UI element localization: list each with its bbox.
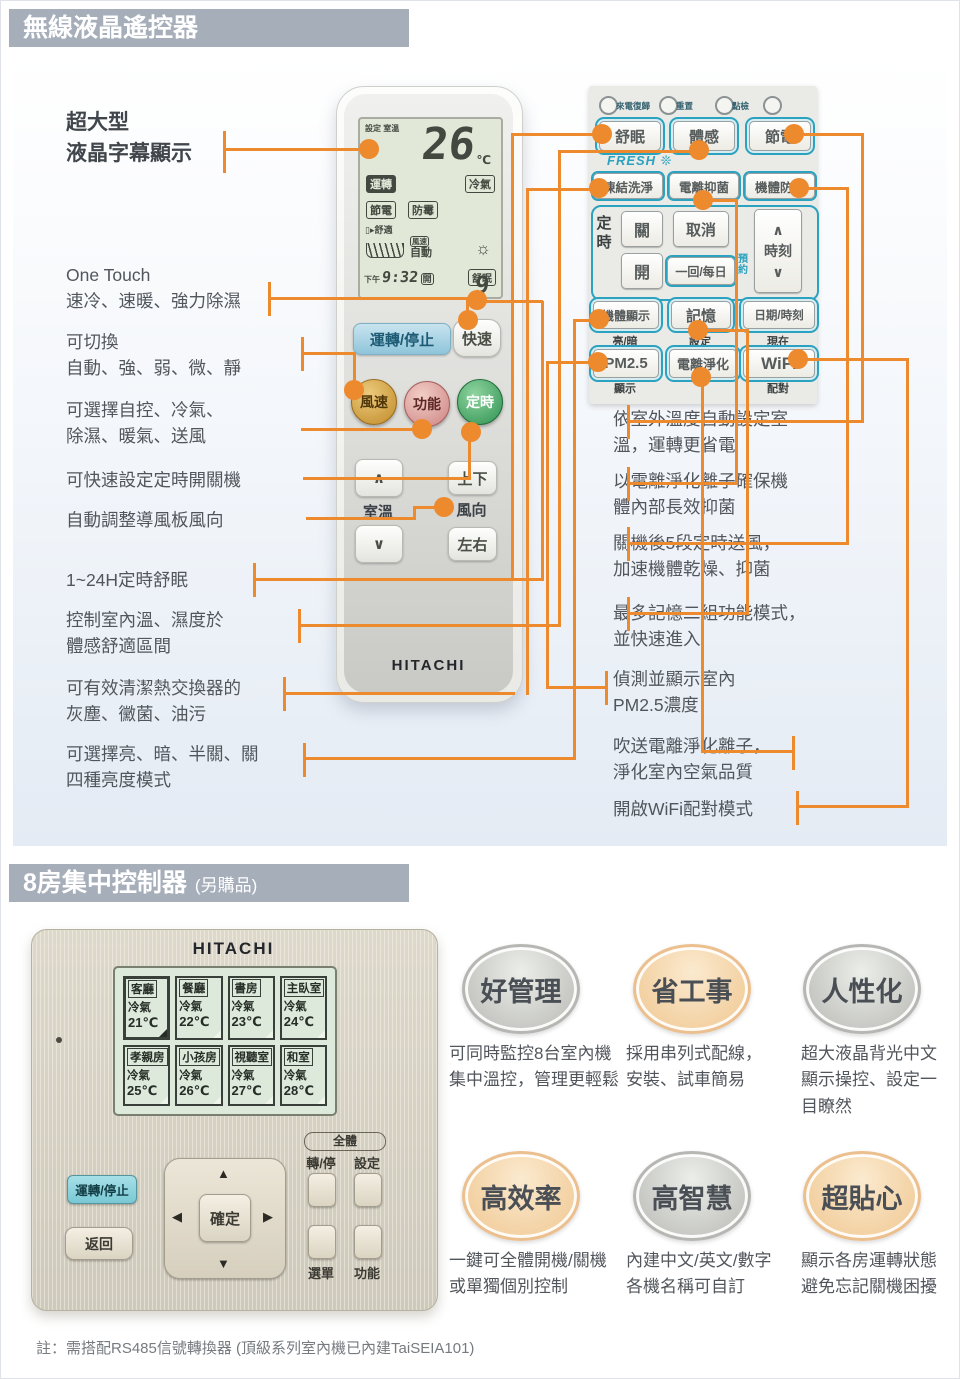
date-time-button[interactable]: 日期/時刻 xyxy=(743,301,815,329)
callout-label-3: 可選擇自控、冷氣、除濕、暖氣、送風 xyxy=(66,398,224,450)
controller-power-button[interactable]: 運轉/停止 xyxy=(67,1175,137,1204)
connector-line-25 xyxy=(283,692,515,695)
connector-line-53 xyxy=(703,750,794,753)
connector-line-54 xyxy=(792,736,795,770)
chevron-up-icon: ∧ xyxy=(772,220,783,241)
controller-menu-button[interactable] xyxy=(308,1225,336,1259)
connector-line-33 xyxy=(861,133,864,423)
section2-subtitle: (另購品) xyxy=(195,876,257,895)
connector-line-3 xyxy=(268,297,468,300)
remote-wind-direction-label: 風向 xyxy=(448,499,495,520)
room-cell-7: 和室冷氣28℃ xyxy=(280,1045,327,1107)
lcd-mold-badge: 防霉 xyxy=(408,201,438,219)
feature-bubble-0: 好管理 xyxy=(462,944,580,1034)
connector-line-56 xyxy=(906,358,909,808)
connector-dot-11 xyxy=(693,190,713,210)
connector-line-50 xyxy=(546,686,607,689)
callout-label-4: 可快速設定定時開關機 xyxy=(66,468,241,494)
feature-bubble-2: 人性化 xyxy=(803,944,921,1034)
timer-group-label: 定時 xyxy=(596,215,612,253)
feature-description-5: 吹送電離淨化離子，淨化室內空氣品質 xyxy=(613,734,771,786)
lcd-mode-badge: 冷氣 xyxy=(465,175,495,193)
connector-line-19 xyxy=(511,133,604,136)
remote-timer-button[interactable]: 定時 xyxy=(457,379,503,425)
panel-sub-label-亮/暗: 亮/暗 xyxy=(612,333,637,349)
feature-text-1: 採用串列式配線，安裝、試車簡易 xyxy=(626,1041,806,1094)
chevron-down-icon: ∨ xyxy=(772,262,783,283)
room-cell-1: 餐廳冷氣22℃ xyxy=(175,976,222,1040)
connector-line-16 xyxy=(541,301,544,581)
connector-line-51 xyxy=(605,671,608,705)
connector-line-23 xyxy=(558,150,701,153)
lcd-time-row: 下午 9:32 開 xyxy=(364,268,434,286)
connector-dot-12 xyxy=(789,178,809,198)
feature-bubble-4: 高智慧 xyxy=(633,1151,751,1241)
remote-power-button[interactable]: 運轉/停止 xyxy=(353,323,451,355)
connector-dot-3 xyxy=(412,419,432,439)
lcd-set-room-label: 設定 室溫 xyxy=(365,123,399,134)
connector-line-41 xyxy=(846,187,849,545)
controller-back-button[interactable]: 返回 xyxy=(65,1227,133,1260)
connector-line-21 xyxy=(298,624,560,627)
lcd-temp-unit: ℃ xyxy=(476,153,491,167)
controller-set-label: 設定 xyxy=(354,1153,380,1172)
connector-line-58 xyxy=(796,791,799,825)
timer-cancel-button[interactable]: 取消 xyxy=(673,211,729,247)
connector-dot-13 xyxy=(589,309,609,329)
callout-label-5: 自動調整導風板風向 xyxy=(66,508,224,534)
connector-dot-5 xyxy=(434,497,454,517)
connector-line-55 xyxy=(800,358,908,361)
dpad-right-icon[interactable]: ▶ xyxy=(263,1209,273,1225)
product-page: 無線液晶遙控器 設定 室溫 26 ℃ 運轉 冷氣 節電 防霉 ▯▸舒適 風速 自… xyxy=(0,0,960,1379)
room-cell-2: 書房冷氣23℃ xyxy=(228,976,275,1040)
room-cell-5: 小孩房冷氣26℃ xyxy=(175,1045,222,1107)
feature-description-6: 開啟WiFi配對模式 xyxy=(613,797,753,823)
remote-leftright-louver-button[interactable]: 左右 xyxy=(448,527,497,561)
lcd-run-badge: 運轉 xyxy=(366,175,396,193)
feature-bubble-1: 省工事 xyxy=(633,944,751,1034)
timer-reserve-label: 預約 xyxy=(738,254,750,276)
controller-all-label: 全體 xyxy=(304,1132,386,1151)
controller-func-label: 功能 xyxy=(354,1263,380,1282)
timer-off-button[interactable]: 關 xyxy=(621,211,663,247)
connector-line-47 xyxy=(627,597,630,631)
connector-line-46 xyxy=(629,612,748,615)
connector-dot-7 xyxy=(592,124,612,144)
connector-line-9 xyxy=(303,477,471,480)
feature-text-2: 超大液晶背光中文顯示操控、設定一目瞭然 xyxy=(801,1041,960,1120)
room-cell-4: 孝親房冷氣25℃ xyxy=(123,1045,170,1107)
panel-sub-label-現在: 現在 xyxy=(767,333,789,349)
timer-on-button[interactable]: 開 xyxy=(621,253,663,289)
connector-line-39 xyxy=(627,467,630,501)
connector-dot-15 xyxy=(588,352,608,372)
section2-title: 8房集中控制器 xyxy=(23,869,187,897)
connector-line-30 xyxy=(573,319,576,760)
callout-label-0: 超大型液晶字幕顯示 xyxy=(66,107,192,169)
connector-line-49 xyxy=(546,361,549,689)
controller-brand-logo: HITACHI xyxy=(31,939,436,959)
feature-text-5: 顯示各房運轉狀態避免忘記關機困擾 xyxy=(801,1248,960,1301)
connector-line-18 xyxy=(511,134,514,580)
connector-line-29 xyxy=(303,757,575,760)
connector-dot-14 xyxy=(688,320,708,340)
connector-dot-9 xyxy=(784,124,804,144)
feature-text-4: 內建中文/英文/數字各機名稱可自訂 xyxy=(626,1248,806,1301)
panel-led-label-0: 來電復歸 xyxy=(616,100,650,112)
connector-line-28 xyxy=(303,743,306,777)
connector-line-57 xyxy=(798,805,908,808)
room-cell-6: 視聽室冷氣27℃ xyxy=(228,1045,275,1107)
lcd-louver-icon xyxy=(366,243,404,258)
room-cell-3: 主臥室冷氣24℃ xyxy=(280,976,327,1040)
lcd-sun-icon: ☼ xyxy=(475,239,491,259)
controller-led-hole xyxy=(56,1037,62,1043)
timer-once-daily-button[interactable]: 一回/每日 xyxy=(667,257,735,285)
connector-line-26 xyxy=(526,189,529,695)
connector-line-8 xyxy=(301,428,424,431)
callout-label-9: 可選擇亮、暗、半關、關四種亮度模式 xyxy=(66,742,259,794)
connector-line-6 xyxy=(301,352,356,355)
controller-all-runstop-button[interactable] xyxy=(308,1173,336,1207)
controller-menu-label: 選單 xyxy=(308,1263,334,1282)
controller-ok-button[interactable]: 確定 xyxy=(199,1194,251,1242)
connector-dot-1 xyxy=(458,310,478,330)
connector-line-43 xyxy=(627,527,630,561)
connector-line-35 xyxy=(627,405,630,439)
connector-line-37 xyxy=(735,199,738,485)
callout-label-8: 可有效清潔熱交換器的灰塵、黴菌、油污 xyxy=(66,676,241,728)
connector-dot-2 xyxy=(344,380,364,400)
callout-label-6: 1~24H定時舒眠 xyxy=(66,568,188,594)
lcd-comfort-label: ▯▸舒適 xyxy=(365,223,393,236)
feature-description-3: 最多記憶二組功能模式，並快速進入 xyxy=(613,601,806,653)
callout-label-7: 控制室內溫、濕度於體感舒適區間 xyxy=(66,608,224,660)
feature-text-0: 可同時監控8台室內機集中溫控，管理更輕鬆 xyxy=(449,1041,629,1094)
connector-line-0 xyxy=(223,131,226,173)
callout-label-1: One Touch速冷、速暖、強力除濕 xyxy=(66,263,241,315)
lcd-fan-auto: 風速 自動 xyxy=(410,237,432,260)
dpad-left-icon[interactable]: ◀ xyxy=(172,1209,182,1225)
panel-sub-label-顯示: 顯示 xyxy=(614,380,636,396)
panel-led-3 xyxy=(763,96,782,115)
controller-lcd: 客廳冷氣21℃餐廳冷氣22℃書房冷氣23℃主臥室冷氣24℃孝親房冷氣25℃小孩房… xyxy=(113,966,337,1116)
dpad-down-icon[interactable]: ▼ xyxy=(217,1256,230,1271)
timer-time-label: 時刻 xyxy=(764,241,792,262)
panel-led-label-2: 點檢 xyxy=(732,100,749,112)
feature-description-4: 偵測並顯示室內PM2.5濃度 xyxy=(613,667,736,719)
fresh-label: FRESH ❊ xyxy=(607,153,673,169)
controller-runstop-label: 轉/停 xyxy=(306,1153,336,1172)
lcd-temperature: 26 xyxy=(419,119,477,170)
connector-line-45 xyxy=(746,329,749,615)
connector-dot-16 xyxy=(691,367,711,387)
connector-dot-0 xyxy=(359,139,379,159)
connector-line-38 xyxy=(629,482,737,485)
panel-led-label-1: 重置 xyxy=(676,100,693,112)
connector-line-1 xyxy=(223,148,371,151)
lcd-energy-badge: 節電 xyxy=(366,201,396,219)
connector-dot-8 xyxy=(689,140,709,160)
controller-func-button[interactable] xyxy=(354,1225,382,1259)
remote-lcd: 設定 室溫 26 ℃ 運轉 冷氣 節電 防霉 ▯▸舒適 風速 自動 ☼ 下午 9… xyxy=(358,117,503,299)
feature-bubble-3: 高效率 xyxy=(462,1151,580,1241)
connector-line-22 xyxy=(558,151,561,627)
feature-description-2: 關機後5段定時送風，加速機體乾燥、抑菌 xyxy=(613,531,780,583)
section1-header: 無線液晶遙控器 xyxy=(9,9,409,47)
callout-label-2: 可切換自動、強、弱、微、靜 xyxy=(66,330,241,382)
connector-line-32 xyxy=(796,133,863,136)
remote-temp-down-button[interactable]: ∨ xyxy=(355,525,403,563)
connector-dot-4 xyxy=(461,422,481,442)
feature-bubble-5: 超貼心 xyxy=(803,1151,921,1241)
connector-line-42 xyxy=(629,542,848,545)
connector-dot-17 xyxy=(788,349,808,369)
connector-dot-6 xyxy=(467,290,487,310)
connector-line-15 xyxy=(253,578,543,581)
footnote: 註：需搭配RS485信號轉換器 (頂級系列室內機已內建TaiSEIA101) xyxy=(36,1337,474,1358)
panel-sub-label-配對: 配對 xyxy=(767,380,789,396)
dpad-up-icon[interactable]: ▲ xyxy=(217,1166,230,1181)
connector-dot-10 xyxy=(589,178,609,198)
controller-all-set-button[interactable] xyxy=(354,1173,382,1207)
feature-text-3: 一鍵可全體開機/關機或單獨個別控制 xyxy=(449,1248,629,1301)
timer-time-updown-button[interactable]: ∧ 時刻 ∨ xyxy=(754,209,802,293)
connector-line-52 xyxy=(701,379,704,753)
remote-brand-logo: HITACHI xyxy=(336,657,521,674)
section1-title: 無線液晶遙控器 xyxy=(23,14,198,42)
room-cell-0: 客廳冷氣21℃ xyxy=(123,976,170,1040)
section2-header: 8房集中控制器(另購品) xyxy=(9,864,409,902)
connector-line-11 xyxy=(306,517,416,520)
